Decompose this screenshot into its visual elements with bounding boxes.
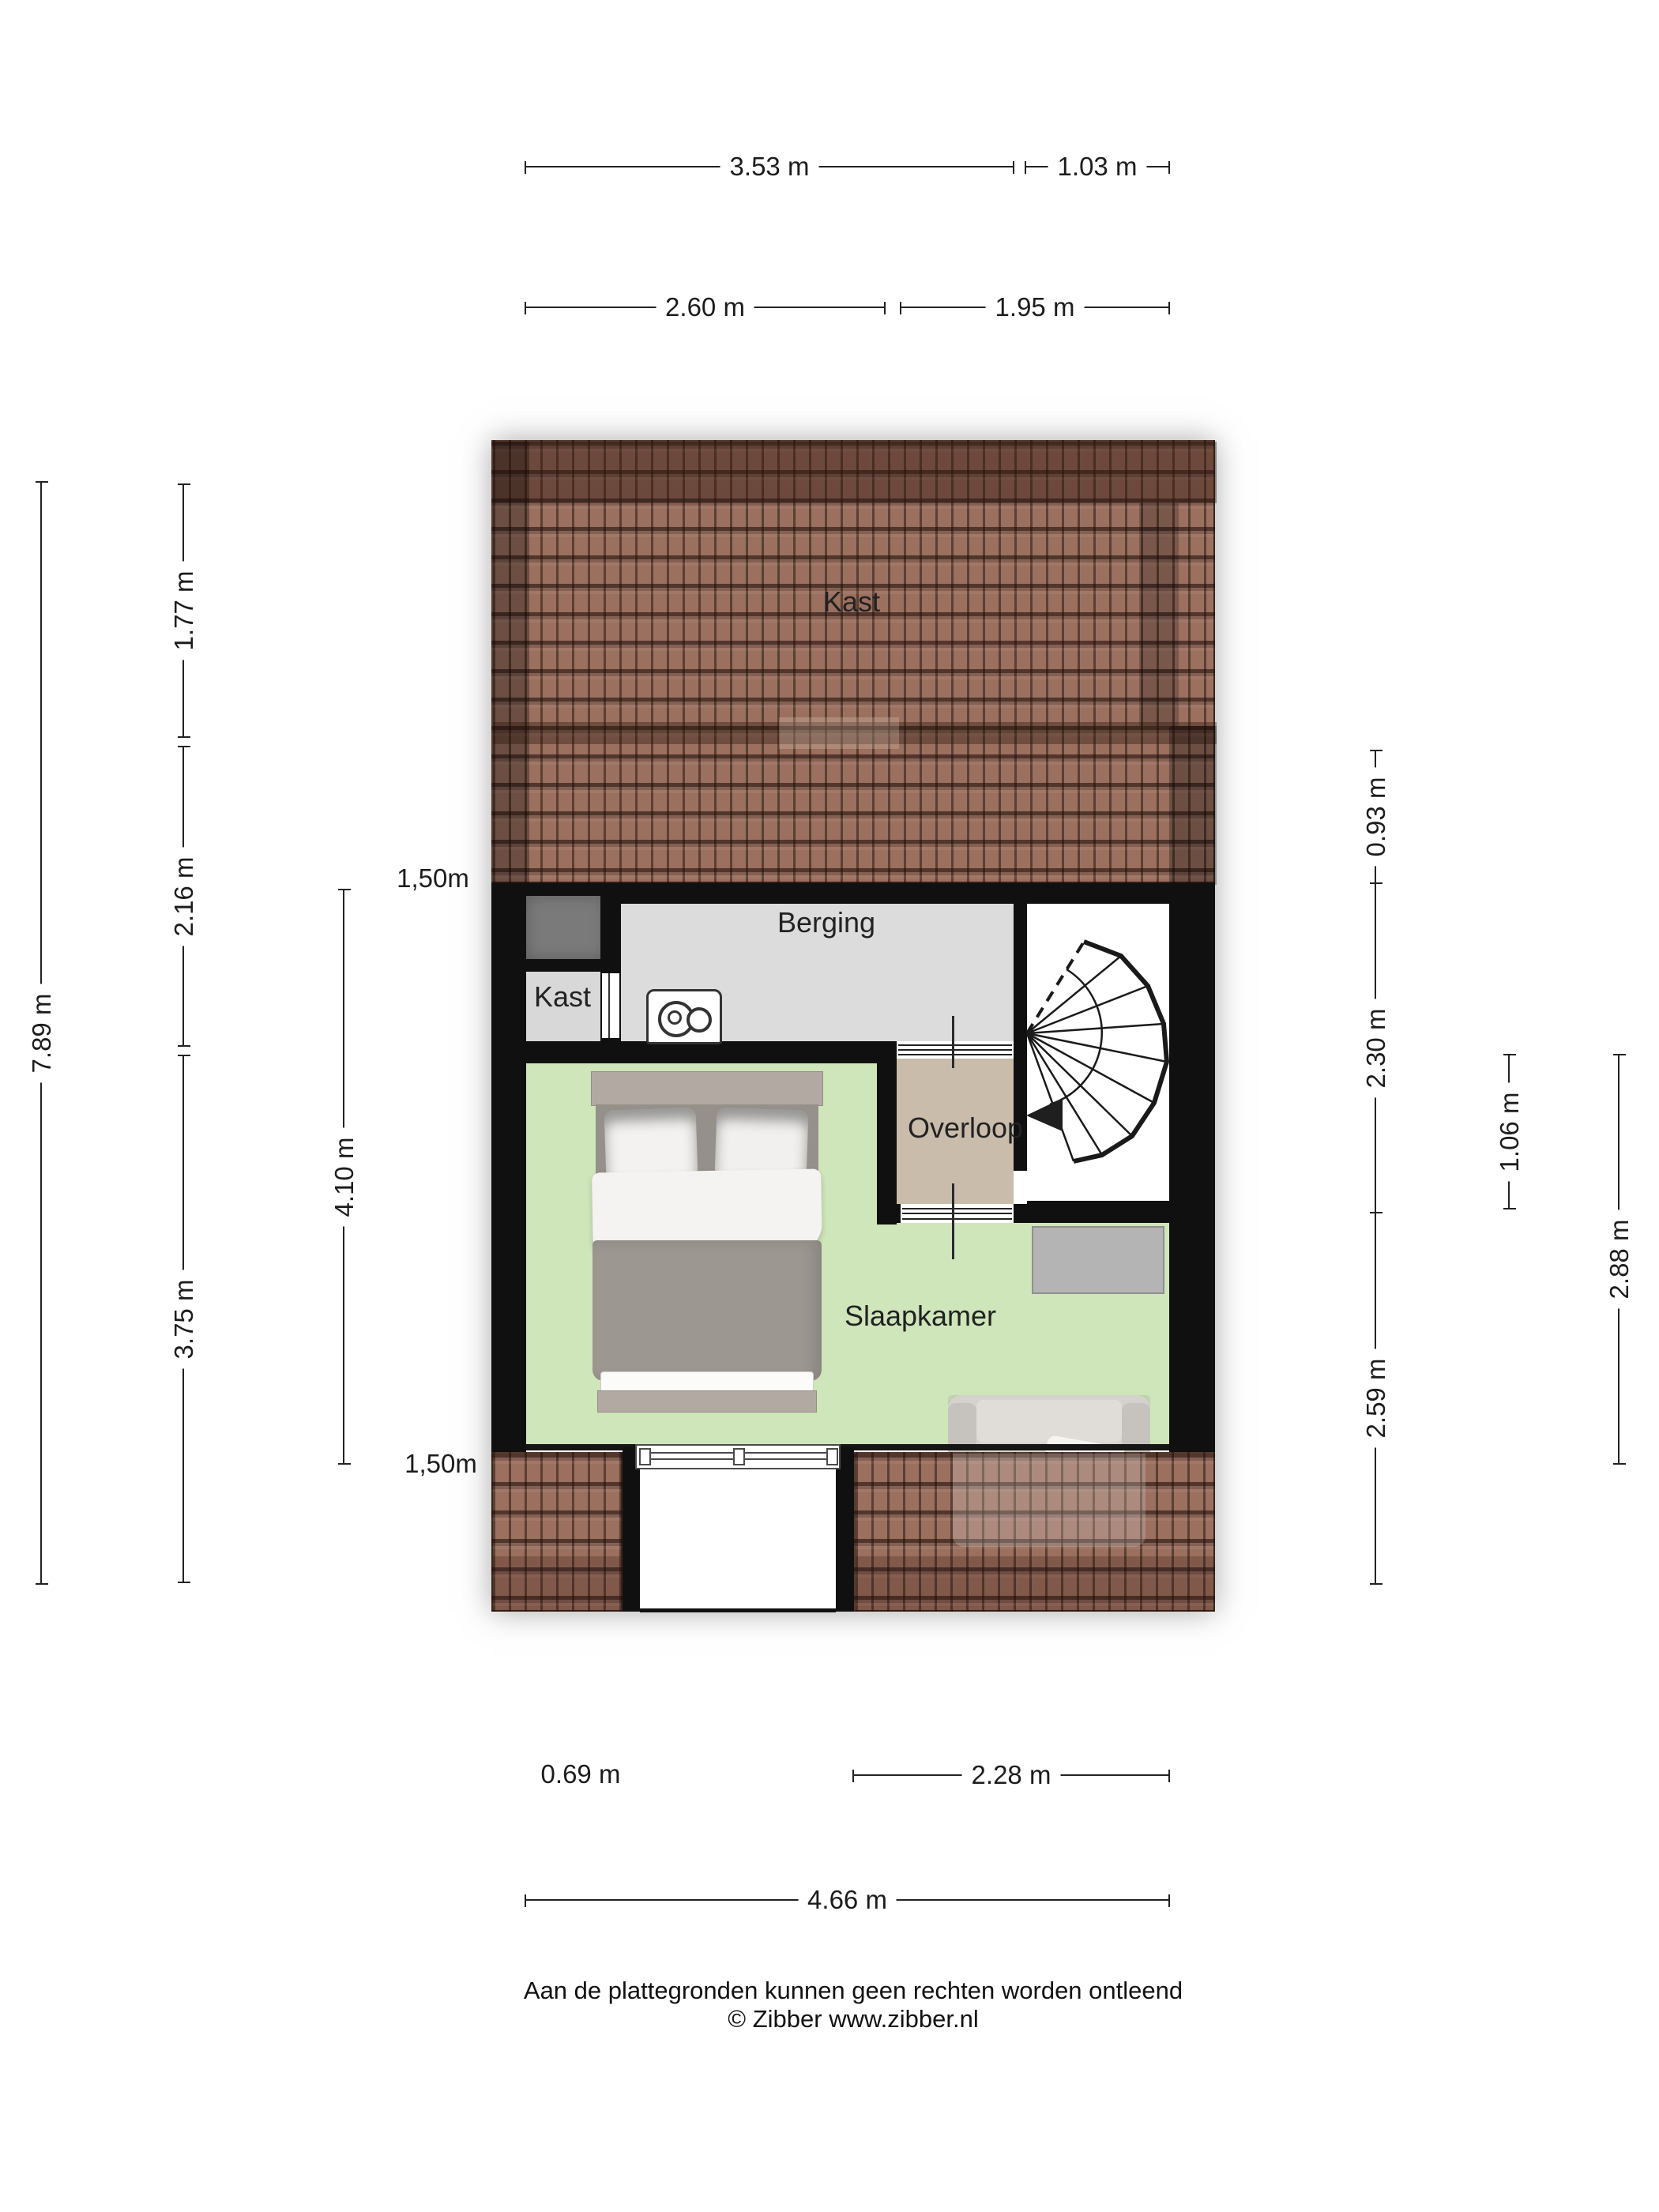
- dim-right-1-06: 1.06 m: [1508, 1055, 1510, 1209]
- window-mullion: [733, 1448, 745, 1465]
- room-label-bedroom: Slaapkamer: [845, 1300, 996, 1333]
- armchair-ghost: [953, 1454, 1145, 1547]
- room-label-closet: Kast: [534, 980, 591, 1014]
- dim-bottom-2-28: 2.28 m: [853, 1774, 1169, 1776]
- bed-mattress-edge: [600, 1371, 814, 1392]
- window-cap-right: [826, 1448, 838, 1465]
- dim-left-3-75: 3.75 m: [182, 1055, 184, 1582]
- bed-pillow-left: [604, 1108, 698, 1180]
- dim-right-2-59: 2.59 m: [1375, 1213, 1376, 1584]
- armchair-back: [976, 1400, 1122, 1443]
- room-label-landing: Overloop: [908, 1112, 1023, 1145]
- dim-top-1-95: 1.95 m: [901, 307, 1169, 308]
- closet-door-opening: [602, 973, 619, 1038]
- floorplan-page: Kast Berging Kast Overloop Slaapkamer: [0, 0, 1659, 2212]
- bed-foot-frame: [597, 1390, 817, 1413]
- dim-right-2-88: 2.88 m: [1618, 1055, 1619, 1464]
- dormer-recess: [640, 1469, 836, 1612]
- roof-right-wall-shade-lower: [1169, 726, 1217, 885]
- room-label-storage: Berging: [777, 906, 875, 939]
- spiral-stairs: [1014, 901, 1215, 1204]
- dim-top-3-53: 3.53 m: [525, 166, 1014, 167]
- stairs-direction-arrow: [1026, 1098, 1063, 1131]
- dim-top-2-60: 2.60 m: [525, 307, 885, 308]
- bed-duvet: [592, 1240, 822, 1381]
- boiler-dial-small: [687, 1007, 712, 1033]
- wall-stairwell-bottom: [1014, 1201, 1215, 1223]
- dormer-wall-left: [623, 1447, 640, 1612]
- copyright-text: © Zibber www.zibber.nl: [728, 2005, 978, 2033]
- dormer-window: [635, 1444, 841, 1469]
- dim-bottom-0-69: 0.69 m: [541, 1759, 621, 1789]
- shaft-box: [526, 896, 605, 959]
- door-landing-bedroom-leaf: [952, 1183, 954, 1259]
- boiler-unit: [646, 989, 722, 1044]
- dormer-wall-right: [836, 1447, 854, 1612]
- door-landing-bedroom: [901, 1204, 1014, 1223]
- roof-ridge-band: [493, 722, 1217, 744]
- roof-ridge-skylight: [779, 717, 899, 749]
- boiler-dial-dot: [668, 1010, 682, 1025]
- wall-left: [491, 883, 526, 1460]
- dim-left-1-77: 1.77 m: [182, 484, 184, 737]
- roof-top-darkband: [493, 442, 1217, 503]
- dim-right-2-30: 2.30 m: [1375, 883, 1376, 1213]
- roof-bottom-left: [491, 1452, 623, 1612]
- roof-right-wall-shade-upper: [1139, 503, 1179, 726]
- dresser: [1032, 1226, 1164, 1294]
- headroom-label-bottom: 1,50m: [404, 1449, 477, 1479]
- door-storage-landing: [897, 1041, 1014, 1059]
- door-storage-landing-leaf: [952, 1016, 954, 1068]
- window-cap-left: [639, 1448, 651, 1465]
- dim-bottom-4-66: 4.66 m: [525, 1899, 1169, 1901]
- roof-top: [491, 440, 1215, 883]
- dim-top-1-03: 1.03 m: [1025, 166, 1169, 167]
- wall-landing-left: [877, 1041, 897, 1224]
- dim-left-7-89: 7.89 m: [40, 482, 42, 1584]
- dim-left-2-16: 2.16 m: [182, 747, 184, 1046]
- dim-right-0-93: 0.93 m: [1375, 750, 1376, 883]
- roof-left-wall-shade: [493, 442, 529, 885]
- bed-headboard: [591, 1071, 823, 1106]
- headroom-label-top: 1,50m: [397, 863, 469, 893]
- wall-storage-bottom: [526, 1041, 877, 1063]
- room-label-attic-closet: Kast: [823, 585, 880, 619]
- disclaimer-text: Aan de plattegronden kunnen geen rechten…: [524, 1977, 1183, 2005]
- closet-door-leaf: [608, 973, 610, 1038]
- double-bed: [591, 1071, 823, 1414]
- dim-left-4-10: 4.10 m: [343, 890, 344, 1464]
- wall-landing-bottom-left: [877, 1204, 901, 1223]
